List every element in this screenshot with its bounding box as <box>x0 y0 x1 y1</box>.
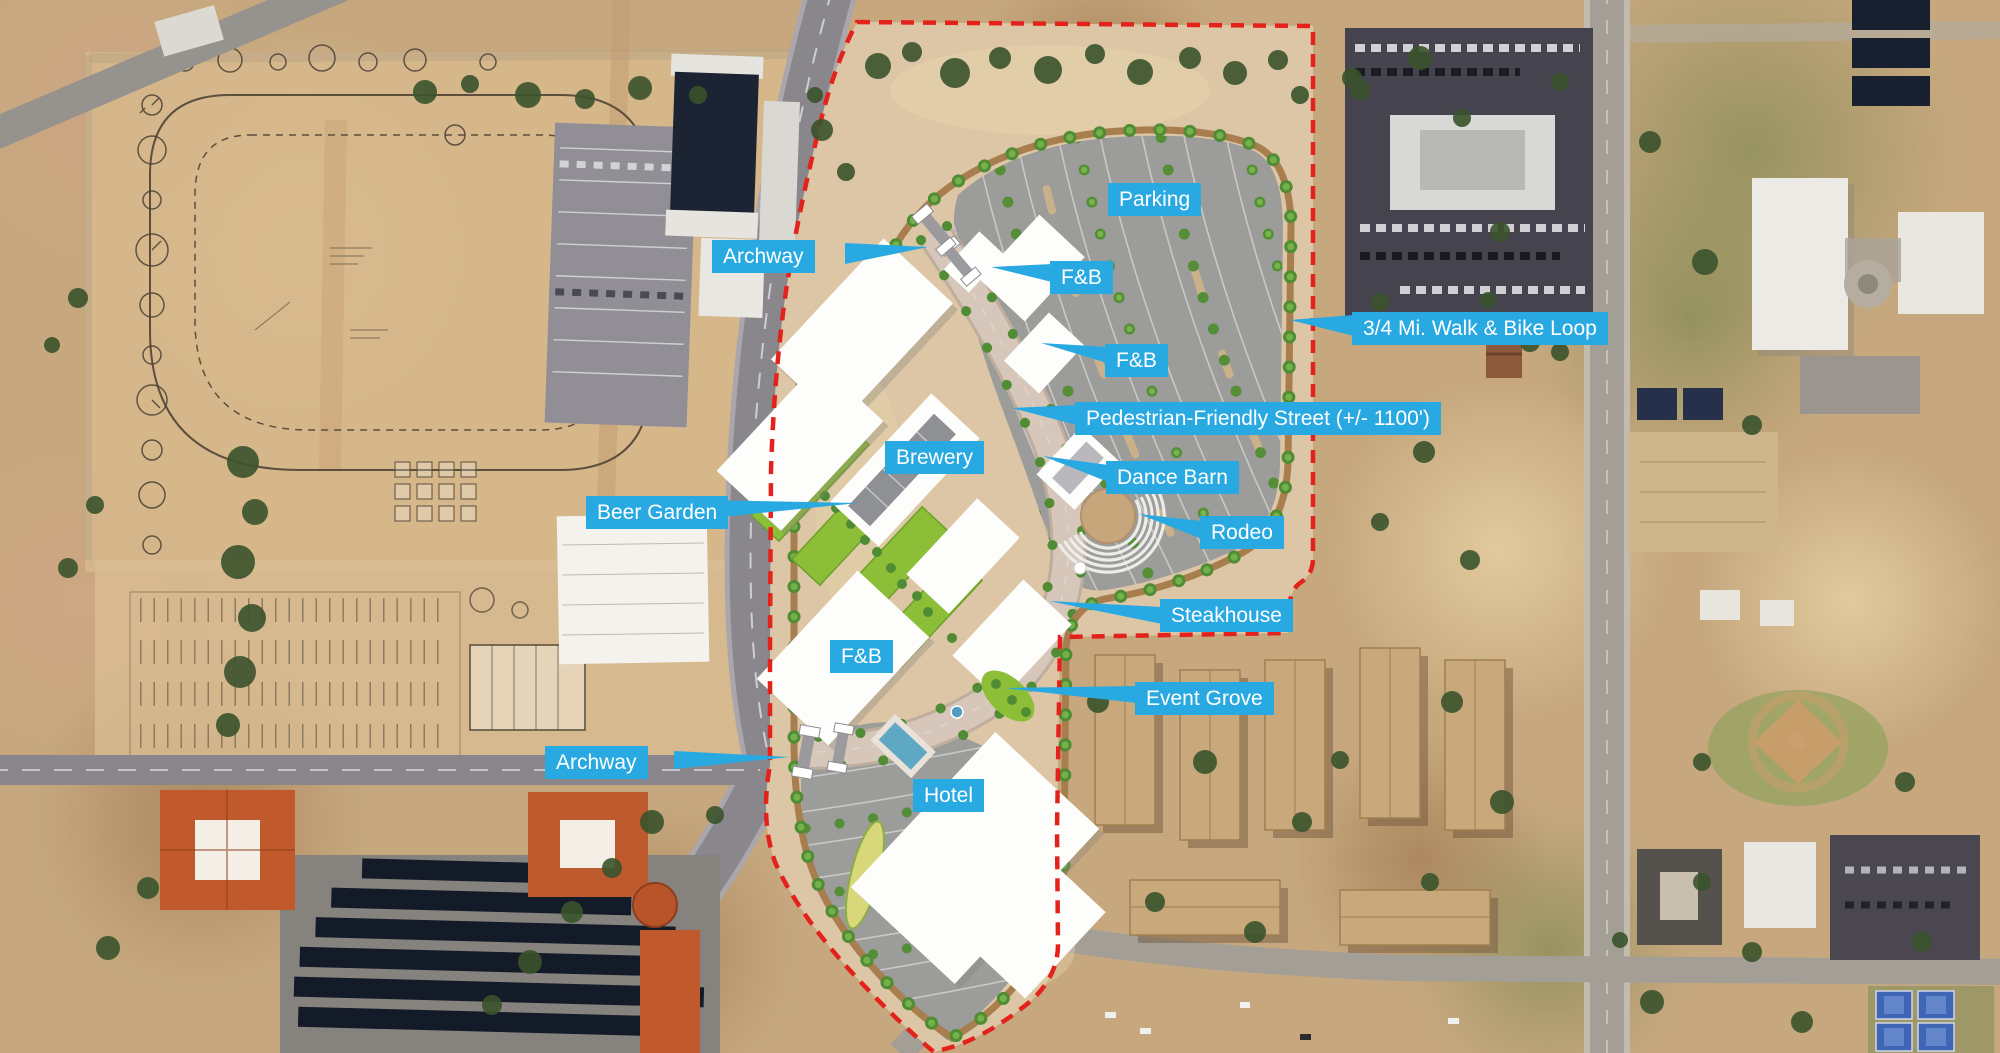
label-dance-barn: Dance Barn <box>1106 461 1239 494</box>
label-fb-south: F&B <box>830 640 893 673</box>
label-archway-north: Archway <box>712 240 815 273</box>
label-brewery: Brewery <box>885 441 984 474</box>
label-event-grove: Event Grove <box>1135 682 1274 715</box>
fountain <box>951 706 963 718</box>
label-beer-garden: Beer Garden <box>586 496 728 529</box>
label-rodeo: Rodeo <box>1200 516 1284 549</box>
parking-complex-northeast <box>1345 28 1593 330</box>
aerial-site-plan-map: Parking Archway F&B F&B 3/4 Mi. Walk & B… <box>0 0 2000 1053</box>
sports-courts <box>1868 986 1994 1053</box>
aerial-basemap <box>0 0 2000 1053</box>
label-hotel: Hotel <box>913 779 984 812</box>
label-walk-bike-loop: 3/4 Mi. Walk & Bike Loop <box>1352 312 1608 345</box>
label-parking: Parking <box>1108 183 1201 216</box>
baseball-field <box>1708 690 1888 806</box>
label-steakhouse: Steakhouse <box>1160 599 1293 632</box>
label-pedestrian-street: Pedestrian-Friendly Street (+/- 1100') <box>1075 402 1441 435</box>
label-fb-north: F&B <box>1050 261 1113 294</box>
label-fb-mid: F&B <box>1105 344 1168 377</box>
label-archway-south: Archway <box>545 746 648 779</box>
